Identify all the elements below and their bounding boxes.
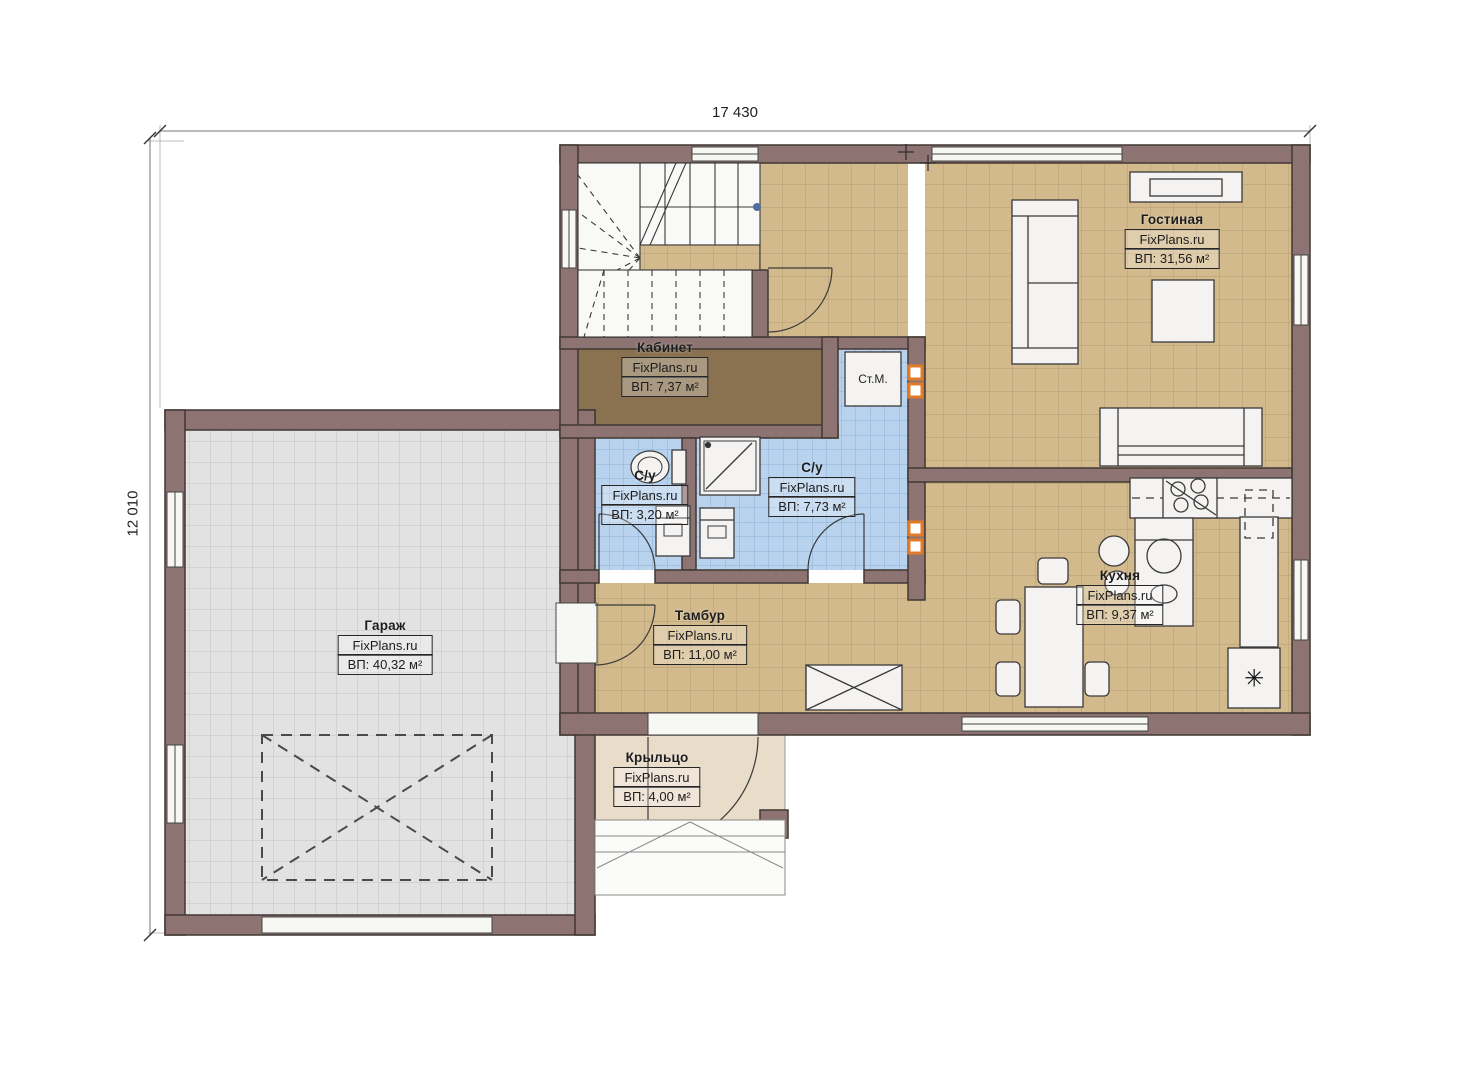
shower-cabin: [700, 437, 760, 495]
stair-winder: [578, 163, 640, 280]
room-area: ВП: 9,37 м²: [1076, 604, 1163, 625]
wall-bath-hall-2: [655, 570, 808, 583]
garage-door-opening: [262, 917, 492, 933]
room-brand: FixPlans.ru: [613, 767, 700, 788]
chair-left-2: [996, 662, 1020, 696]
room-label-bathroom-large: С/у FixPlans.ru ВП: 7,73 м²: [768, 460, 855, 517]
sofa-left: [1012, 200, 1078, 364]
dimension-left-label: 12 010: [125, 479, 142, 549]
room-label-living: Гостиная FixPlans.ru ВП: 31,56 м²: [1125, 212, 1220, 269]
room-brand: FixPlans.ru: [1125, 229, 1220, 250]
dining-table: [1025, 587, 1083, 707]
room-label-bathroom-small: С/у FixPlans.ru ВП: 3,20 м²: [601, 468, 688, 525]
dimension-top-label: 17 430: [688, 104, 782, 121]
staircase: [578, 163, 761, 337]
room-area: ВП: 40,32 м²: [338, 654, 433, 675]
window-garage-left-1: [167, 492, 183, 567]
room-label-kitchen: Кухня FixPlans.ru ВП: 9,37 м²: [1076, 568, 1163, 625]
window-garage-left-2: [167, 745, 183, 823]
room-label-hallway: Тамбур FixPlans.ru ВП: 11,00 м²: [653, 608, 747, 665]
porch-steps: [595, 820, 785, 895]
window-left-stair: [562, 210, 576, 268]
room-brand: FixPlans.ru: [1076, 585, 1163, 606]
stair-start-marker: [753, 203, 761, 211]
floor-plan-canvas: 17 430 12 010 Гостиная FixPlans.ru ВП: 3…: [0, 0, 1473, 1080]
room-brand: FixPlans.ru: [338, 635, 433, 656]
stove: [1163, 478, 1217, 518]
room-area: ВП: 31,56 м²: [1125, 248, 1220, 269]
window-bottom-kitchen: [962, 717, 1148, 731]
kitchen-bowl-1: [1099, 536, 1129, 566]
room-area: ВП: 7,73 м²: [768, 496, 855, 517]
room-brand: FixPlans.ru: [653, 625, 747, 646]
window-right-living: [1294, 255, 1308, 325]
room-area: ВП: 4,00 м²: [613, 786, 700, 807]
room-area: ВП: 11,00 м²: [653, 644, 747, 665]
hallway-wardrobe: [806, 665, 902, 710]
window-top-stair: [692, 147, 758, 161]
wall-house-right: [1292, 145, 1310, 735]
vanity-large-bath: [700, 508, 734, 558]
room-area: ВП: 3,20 м²: [601, 504, 688, 525]
washing-machine-label: Ст.М.: [858, 372, 888, 386]
stair-landing: [640, 245, 760, 270]
wall-office-laundry: [822, 337, 838, 438]
chair-right: [1085, 662, 1109, 696]
room-name: Гостиная: [1125, 212, 1220, 227]
room-name: Гараж: [338, 618, 433, 633]
room-name: С/у: [768, 460, 855, 475]
room-name: Крыльцо: [613, 750, 700, 765]
wall-stair-office: [560, 337, 925, 349]
tv-console: [1130, 172, 1242, 202]
garage-hall-door-opening: [556, 603, 597, 663]
floor-hall-kitchen-opening: [908, 600, 925, 713]
room-brand: FixPlans.ru: [601, 485, 688, 506]
wall-stair-stub: [752, 270, 768, 337]
room-name: С/у: [601, 468, 688, 483]
chair-left-1: [996, 600, 1020, 634]
floor-plan-drawing: [0, 0, 1473, 1080]
wall-garage-left: [165, 410, 185, 935]
kitchen-counter-right: [1240, 517, 1278, 647]
room-label-garage: Гараж FixPlans.ru ВП: 40,32 м²: [338, 618, 433, 675]
floor-upper-hall: [760, 163, 908, 337]
coffee-table: [1152, 280, 1214, 342]
room-label-office: Кабинет FixPlans.ru ВП: 7,37 м²: [621, 340, 708, 397]
sofa-bottom: [1100, 408, 1262, 466]
wall-office-bath: [560, 425, 838, 438]
room-name: Кухня: [1076, 568, 1163, 583]
wall-bath-hall-1: [560, 570, 599, 583]
room-area: ВП: 7,37 м²: [621, 376, 708, 397]
room-name: Тамбур: [653, 608, 747, 623]
window-right-kitchen: [1294, 560, 1308, 640]
wall-garage-top: [165, 410, 595, 430]
window-top-living: [932, 147, 1122, 161]
room-name: Кабинет: [621, 340, 708, 355]
room-brand: FixPlans.ru: [768, 477, 855, 498]
fridge-snowflake-icon: ✳: [1244, 665, 1264, 694]
chair-top: [1038, 558, 1068, 584]
room-brand: FixPlans.ru: [621, 357, 708, 378]
room-label-porch: Крыльцо FixPlans.ru ВП: 4,00 м²: [613, 750, 700, 807]
entrance-door-opening: [648, 713, 758, 735]
